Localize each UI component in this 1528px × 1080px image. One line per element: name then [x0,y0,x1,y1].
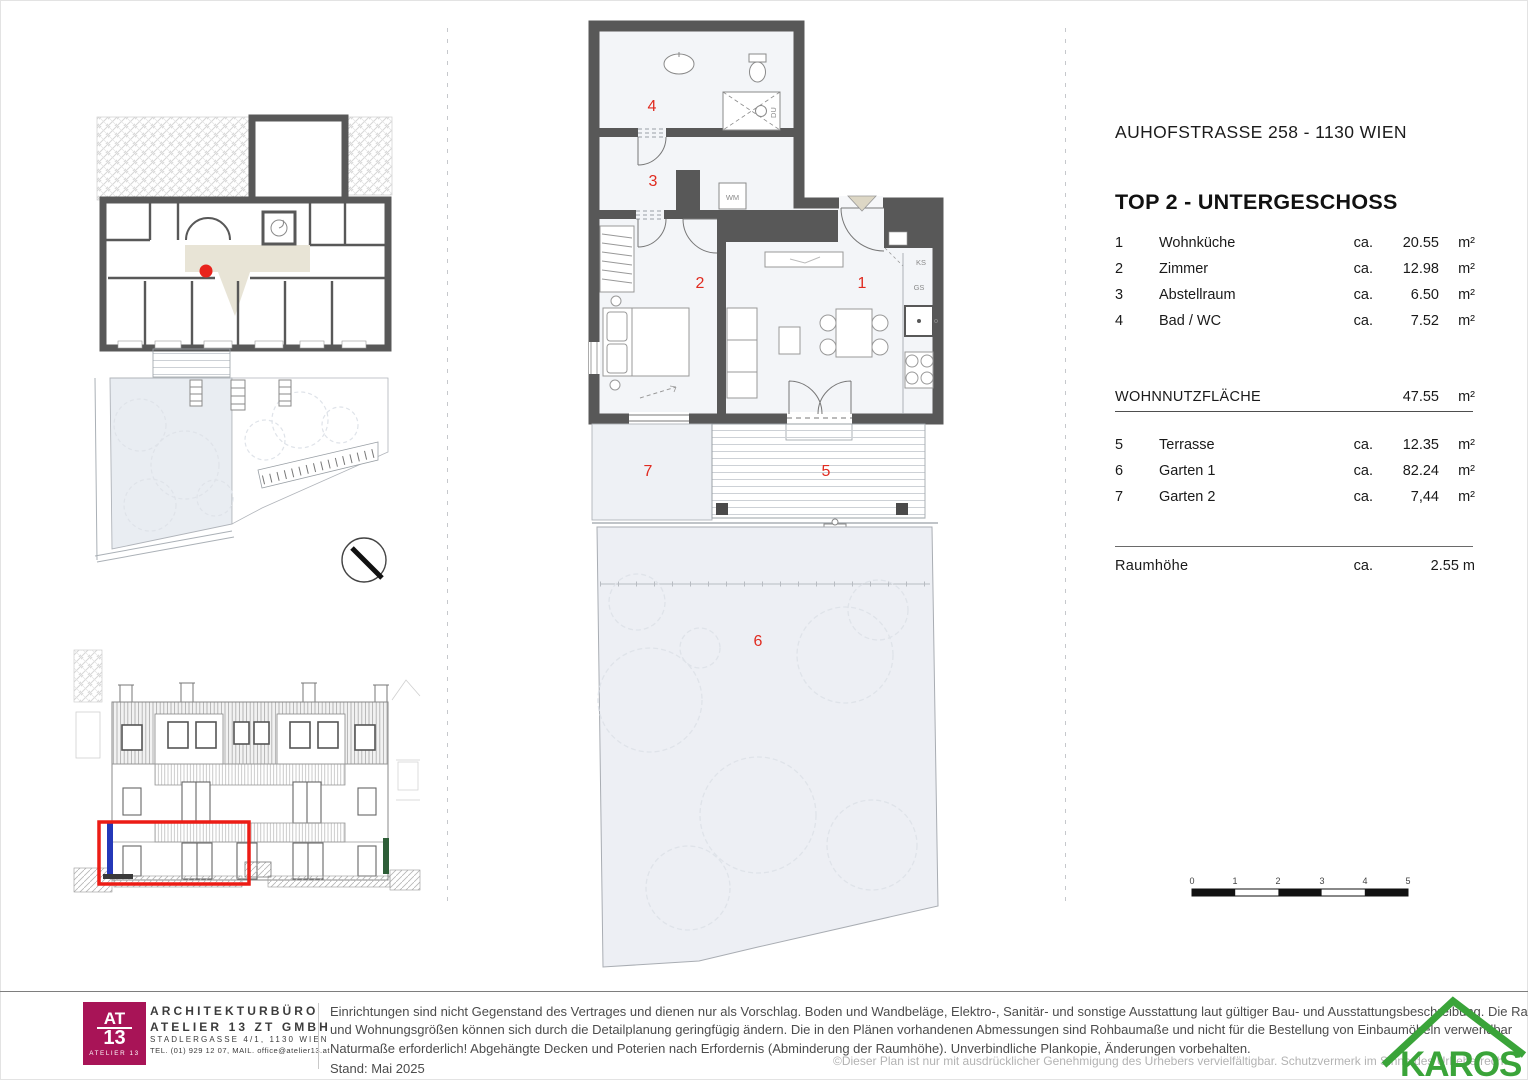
main-floor-plan: DU WM [578,15,950,990]
disclaimer-line-1: Einrichtungen sind nicht Gegenstand des … [330,1003,1528,1021]
room-number-7: 7 [644,463,653,480]
row-ca: ca. [1315,261,1373,277]
row-num: 2 [1115,261,1159,277]
row-value: 20.55 [1373,235,1439,251]
footer-divider [318,1003,319,1069]
architect-name: ARCHITEKTURBÜRO [150,1004,331,1020]
table-row-garten1: 6 Garten 1 ca. 82.24 m² [1115,463,1475,479]
architect-logo: AT 13 ATELIER 13 [83,1002,146,1065]
scale-tick-3: 3 [1319,876,1324,886]
panel-divider-right [1065,28,1066,906]
scale-tick-1: 1 [1232,876,1237,886]
room-number-1: 1 [858,275,867,292]
window-opening-zimmer [629,412,689,425]
table-row-abstellraum: 3 Abstellraum ca. 6.50 m² [1115,287,1475,303]
row-ca: ca. [1315,313,1373,329]
room-height-label: Raumhöhe [1115,558,1315,574]
subtotal-label: WOHNNUTZFLÄCHE [1115,389,1315,405]
architect-logo-middle: 13 [103,1029,125,1048]
footer-separator [0,991,1528,992]
row-unit: m² [1439,235,1475,251]
subtotal-unit: m² [1439,389,1475,405]
disclaimer-line-2: und Wohnungsgrößen können sich durch die… [330,1021,1528,1039]
row-label: Wohnküche [1159,235,1315,251]
elevation-drawing [70,645,422,905]
green-level-marker [383,838,389,874]
row-value: 82.24 [1373,463,1439,479]
subtotal-underline [1115,411,1473,412]
table-row-zimmer: 2 Zimmer ca. 12.98 m² [1115,261,1475,277]
row-value: 7,44 [1373,489,1439,505]
unit-location-dot [200,265,213,278]
architect-info: ARCHITEKTURBÜRO ATELIER 13 ZT GMBH STADL… [150,1004,331,1056]
karos-logo: KAROS [1376,995,1528,1080]
apartment: DU WM [589,26,943,440]
unit-title: TOP 2 - UNTERGESCHOSS [1115,190,1398,215]
scale-bar-segments [1192,889,1408,896]
row-value: 7.52 [1373,313,1439,329]
table-row-bad-wc: 4 Bad / WC ca. 7.52 m² [1115,313,1475,329]
outdoor-areas: 7 5 6 [592,424,938,967]
architect-logo-bottom: ATELIER 13 [89,1050,140,1057]
row-unit: m² [1439,489,1475,505]
row-label: Garten 2 [1159,489,1315,505]
row-num: 6 [1115,463,1159,479]
room-number-2: 2 [696,275,705,292]
row-ca: ca. [1315,463,1373,479]
table-row-wohnkueche: 1 Wohnküche ca. 20.55 m² [1115,235,1475,251]
washing-machine-label: WM [726,193,739,202]
north-compass [342,538,386,582]
row-ca: ca. [1315,287,1373,303]
row-unit: m² [1439,313,1475,329]
row-value: 6.50 [1373,287,1439,303]
row-label: Abstellraum [1159,287,1315,303]
row-num: 3 [1115,287,1159,303]
row-ca: ca. [1315,437,1373,453]
scale-bar: 0 1 2 3 4 5 [1185,868,1417,908]
scale-bar-ticks: 0 1 2 3 4 5 [1189,876,1410,886]
garten1-area [597,527,938,967]
room-height-ca: ca. [1315,558,1373,574]
row-num: 1 [1115,235,1159,251]
chimneys [118,683,389,702]
row-label: Terrasse [1159,437,1315,453]
base-marker [103,874,133,879]
row-num: 7 [1115,489,1159,505]
architect-company: ATELIER 13 ZT GMBH [150,1020,331,1036]
row-ca: ca. [1315,235,1373,251]
row-label: Garten 1 [1159,463,1315,479]
dishwasher-label: GS [914,283,925,292]
room-number-5: 5 [822,463,831,480]
row-label: Zimmer [1159,261,1315,277]
architect-street: STADLERGASSE 4/1, 1130 WIEN [150,1035,331,1046]
scale-tick-2: 2 [1275,876,1280,886]
scale-tick-0: 0 [1189,876,1194,886]
row-label: Bad / WC [1159,313,1315,329]
room-height-row: Raumhöhe ca. 2.55 m [1115,558,1475,574]
row-ca: ca. [1315,489,1373,505]
karos-wordmark: KAROS [1400,1045,1521,1080]
shower-label: DU [769,107,778,118]
row-value: 12.98 [1373,261,1439,277]
room-number-3: 3 [649,173,658,190]
table-divider [1115,546,1473,547]
room-number-6: 6 [754,633,763,650]
row-unit: m² [1439,287,1475,303]
plan-sheet: { "document": { "address": "AUHOFSTRASSE… [0,0,1528,1080]
blue-level-marker [107,822,113,874]
row-num: 4 [1115,313,1159,329]
row-unit: m² [1439,437,1475,453]
table-row-garten2: 7 Garten 2 ca. 7,44 m² [1115,489,1475,505]
row-unit: m² [1439,261,1475,277]
subtotal-row: WOHNNUTZFLÄCHE 47.55 m² [1115,389,1475,405]
scale-tick-5: 5 [1405,876,1410,886]
room-height-value: 2.55 m [1373,558,1475,574]
room-number-4: 4 [648,98,657,115]
row-num: 5 [1115,437,1159,453]
row-value: 12.35 [1373,437,1439,453]
row-unit: m² [1439,463,1475,479]
architect-contact: TEL. (01) 929 12 07, MAIL. office@atelie… [150,1046,331,1056]
site-garden [95,349,388,562]
fridge-label: KS [916,258,926,267]
scale-tick-4: 4 [1362,876,1367,886]
subtotal-value: 47.55 [1373,389,1439,405]
panel-divider-left [447,28,448,906]
site-plan [75,105,405,605]
terrasse-area [712,424,925,518]
project-address: AUHOFSTRASSE 258 - 1130 WIEN [1115,122,1407,143]
table-row-terrasse: 5 Terrasse ca. 12.35 m² [1115,437,1475,453]
